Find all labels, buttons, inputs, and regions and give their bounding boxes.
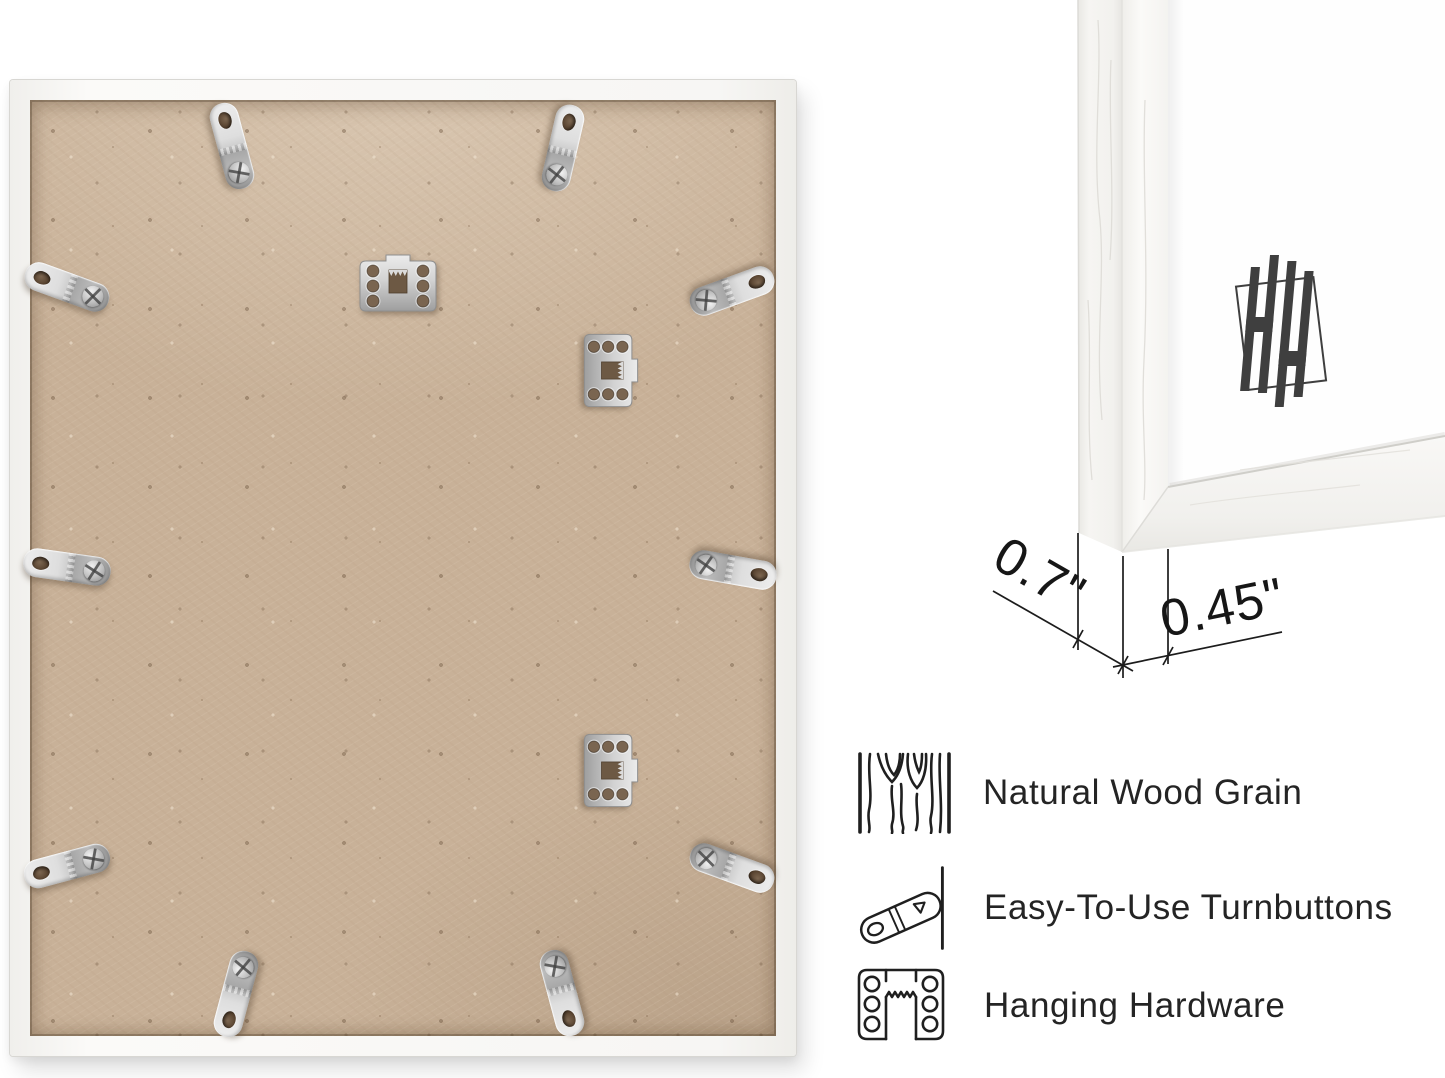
- mat-area: [1168, 0, 1445, 487]
- sawtooth-hanger-middle: [583, 333, 640, 409]
- wood-grain-icon: [856, 752, 953, 834]
- turnbutton-icon: [856, 865, 952, 951]
- frame-corner-photo: 0.7" 0.45": [940, 0, 1445, 690]
- feature-label-turnbuttons: Easy-To-Use Turnbuttons: [984, 888, 1393, 928]
- dimension-width-label: 0.45": [1155, 567, 1289, 649]
- feature-row-turnbuttons: Easy-To-Use Turnbuttons: [856, 864, 1393, 952]
- feature-label-hanging-hardware: Hanging Hardware: [984, 986, 1285, 1026]
- frame-side-surface: [1078, 0, 1122, 552]
- mdf-backing-board: [30, 100, 776, 1036]
- sawtooth-hanger-top: [358, 253, 438, 313]
- feature-row-wood-grain: Natural Wood Grain: [856, 750, 1302, 836]
- product-infographic: { "canvas": { "background": "#ffffff" },…: [0, 0, 1445, 1078]
- feature-label-wood-grain: Natural Wood Grain: [983, 773, 1302, 813]
- frame-back-photo: [10, 80, 796, 1056]
- hanging-hardware-icon: [856, 967, 946, 1045]
- sawtooth-hanger-bottom: [583, 733, 640, 809]
- feature-row-hanging-hardware: Hanging Hardware: [856, 962, 1285, 1050]
